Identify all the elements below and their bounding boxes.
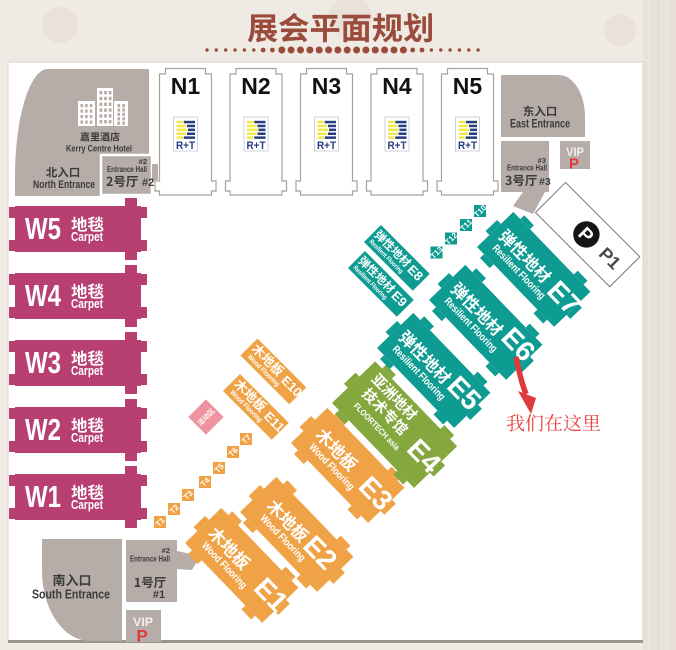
- svg-text:North Entrance: North Entrance: [33, 179, 95, 191]
- svg-text:N3: N3: [312, 73, 341, 99]
- svg-text:W2: W2: [25, 412, 61, 447]
- svg-text:N5: N5: [453, 73, 483, 99]
- svg-text:#2: #2: [142, 177, 154, 189]
- svg-text:R+T: R+T: [247, 140, 266, 152]
- svg-text:#1: #1: [153, 589, 165, 601]
- svg-text:N1: N1: [171, 73, 201, 99]
- svg-text:Entrance Hall: Entrance Hall: [107, 164, 147, 174]
- svg-text:W5: W5: [25, 211, 61, 246]
- svg-text:N4: N4: [382, 73, 412, 99]
- svg-text:Kerry Centre Hotel: Kerry Centre Hotel: [66, 144, 132, 155]
- svg-text:East Entrance: East Entrance: [510, 119, 570, 131]
- svg-text:P: P: [569, 156, 579, 173]
- svg-text:N2: N2: [241, 73, 270, 99]
- svg-text:W3: W3: [25, 345, 61, 380]
- svg-text:R+T: R+T: [176, 140, 195, 152]
- svg-text:South Entrance: South Entrance: [32, 588, 110, 602]
- svg-text:Carpet: Carpet: [71, 296, 104, 311]
- svg-text:Carpet: Carpet: [71, 229, 104, 244]
- svg-text:Carpet: Carpet: [71, 497, 104, 512]
- svg-text:R+T: R+T: [317, 140, 336, 152]
- svg-text:P: P: [136, 627, 147, 646]
- svg-text:W4: W4: [25, 278, 62, 313]
- svg-text:Entrance Hall: Entrance Hall: [507, 163, 547, 173]
- svg-text:W1: W1: [25, 479, 61, 514]
- svg-text:Entrance Hall: Entrance Hall: [130, 554, 170, 564]
- svg-text:Carpet: Carpet: [71, 430, 104, 445]
- svg-text:R+T: R+T: [458, 140, 477, 152]
- svg-text:#3: #3: [539, 176, 551, 188]
- svg-text:Carpet: Carpet: [71, 363, 104, 378]
- svg-text:R+T: R+T: [388, 140, 407, 152]
